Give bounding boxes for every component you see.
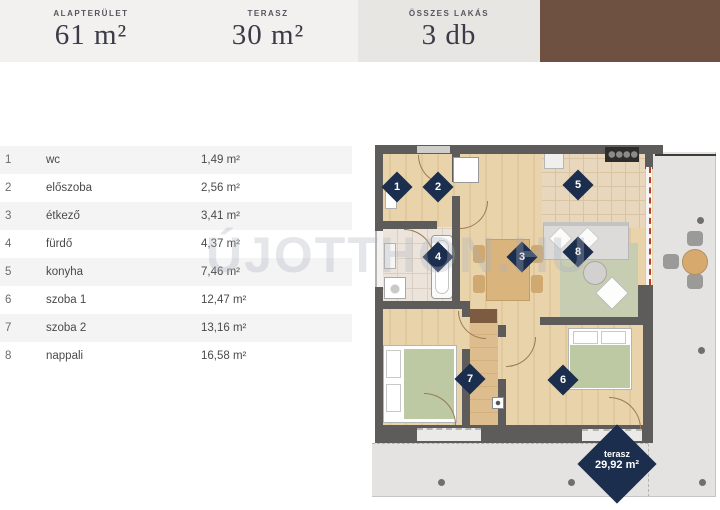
stat-value: 30 m² [193,19,343,52]
terrace-dot [698,347,705,354]
wall-fixture [492,397,504,409]
stat-value: 61 m² [16,19,166,52]
marker-number: 4 [427,246,449,268]
entry-door-opening [417,146,450,153]
room-marker-2: 2 [422,171,453,202]
stat-label: TERASZ [193,9,343,18]
terrace-dot [697,217,704,224]
bathroom-sink [384,243,396,269]
room-name: szoba 1 [46,294,201,306]
wall [383,221,437,229]
stat-value: 3 db [358,19,540,52]
table-row: 6 szoba 1 12,47 m² [0,286,352,314]
room-marker-3: 3 [506,241,537,272]
row-number: 3 [0,210,46,222]
table-row: 3 étkező 3,41 m² [0,202,352,230]
room-area: 4,37 m² [201,238,341,250]
pillow [386,350,401,378]
room-marker-7: 7 [454,363,485,394]
room-area: 2,56 m² [201,182,341,194]
terrace-right [648,152,716,497]
wall [645,145,653,169]
terrace-chair [687,231,703,246]
table-row: 1 wc 1,49 m² [0,146,352,174]
stats-header: ALAPTERÜLET 61 m² TERASZ 30 m² ÖSSZES LA… [0,0,720,62]
room-table: 1 wc 1,49 m² 2 előszoba 2,56 m² 3 étkező… [0,146,352,370]
terrace-label-area: 29,92 m² [568,459,666,471]
wall [375,145,383,443]
room-name: étkező [46,210,201,222]
wall [380,301,470,309]
stat-label: ÖSSZES LAKÁS [358,9,540,18]
room-area: 16,58 m² [201,350,341,362]
bed-blanket [570,345,630,388]
room-marker-4: 4 [422,241,453,272]
room-area: 1,49 m² [201,154,341,166]
dining-chair [473,245,485,263]
stove [605,147,639,162]
stat-terasz: TERASZ 30 m² [193,0,343,62]
row-number: 5 [0,266,46,278]
room-area: 13,16 m² [201,322,341,334]
terrace-dot [568,479,575,486]
stat-label: ALAPTERÜLET [16,9,166,18]
stat-osszes-lakas: ÖSSZES LAKÁS 3 db [358,0,540,62]
wall [498,325,506,337]
room-area: 12,47 m² [201,294,341,306]
terrace-label-title: terasz [568,449,666,459]
room-area: 3,41 m² [201,210,341,222]
room-marker-6: 6 [547,364,578,395]
table-row: 7 szoba 2 13,16 m² [0,314,352,342]
room-marker-1: 1 [381,171,412,202]
room-marker-5: 5 [562,169,593,200]
table-row: 2 előszoba 2,56 m² [0,174,352,202]
marker-number: 2 [427,176,449,198]
washing-machine [384,277,406,299]
dining-chair [531,275,543,293]
room-marker-8: 8 [562,236,593,267]
marker-number: 6 [552,369,574,391]
room-name: wc [46,154,201,166]
row-number: 1 [0,154,46,166]
wall [540,317,643,325]
stat-alapterulet: ALAPTERÜLET 61 m² [16,0,166,62]
terrace-table [682,249,708,275]
room-name: szoba 2 [46,322,201,334]
terrace-dot [699,479,706,486]
room-name: fürdő [46,238,201,250]
row-number: 8 [0,350,46,362]
pillow [573,331,598,344]
wall [452,196,460,303]
window [375,231,383,287]
floor-plan: 1 2 3 4 5 6 7 8 terasz 29,92 m² [372,141,718,497]
sliding-door-dashed-line [649,167,651,285]
kitchen-cabinet [544,153,564,169]
wall [643,317,653,443]
marker-number: 3 [511,246,533,268]
room-area: 7,46 m² [201,266,341,278]
shaft-box [453,157,479,183]
dining-chair [473,275,485,293]
coffee-table [583,261,607,285]
room-name: nappali [46,350,201,362]
room-name: konyha [46,266,201,278]
terrace-label: terasz 29,92 m² [568,449,666,471]
row-number: 2 [0,182,46,194]
row-number: 7 [0,322,46,334]
table-row: 5 konyha 7,46 m² [0,258,352,286]
marker-number: 1 [386,176,408,198]
terrace-dot [438,479,445,486]
terrace-door [417,428,481,441]
marker-number: 5 [567,174,589,196]
pillow [601,331,626,344]
terrace-chair [687,274,703,289]
row-number: 6 [0,294,46,306]
marker-number: 7 [459,368,481,390]
room-name: előszoba [46,182,201,194]
wall [638,285,653,319]
pillow [386,384,401,412]
terrace-top-line [655,154,716,156]
header-brown-block [540,0,720,62]
table-row: 4 fürdő 4,37 m² [0,230,352,258]
terrace-chair [663,254,679,269]
marker-number: 8 [567,241,589,263]
row-number: 4 [0,238,46,250]
table-row: 8 nappali 16,58 m² [0,342,352,370]
